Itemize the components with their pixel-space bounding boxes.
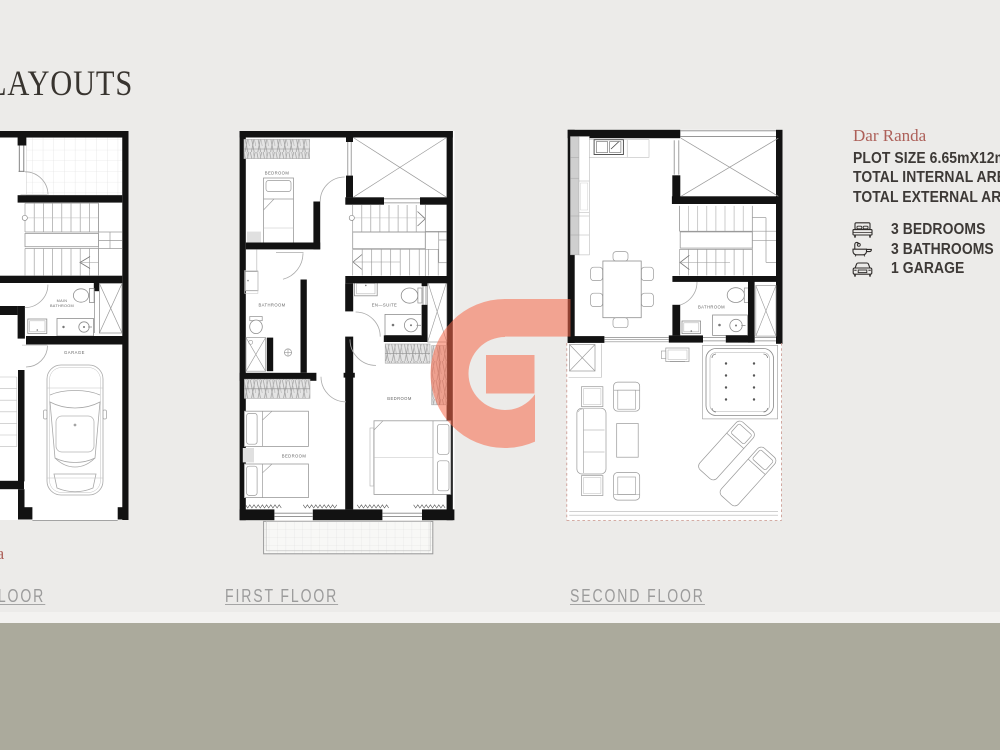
svg-text:BATHROOM: BATHROOM xyxy=(698,305,725,310)
svg-text:BEDROOM: BEDROOM xyxy=(282,454,307,459)
svg-text:BEDROOM: BEDROOM xyxy=(387,396,412,401)
svg-text:EN—SUITE: EN—SUITE xyxy=(372,303,398,308)
svg-text:GARAGE: GARAGE xyxy=(64,350,85,355)
svg-text:MAIN: MAIN xyxy=(57,299,68,303)
svg-text:BEDROOM: BEDROOM xyxy=(265,171,290,176)
svg-text:BATHROOM: BATHROOM xyxy=(258,303,285,308)
svg-text:BATHROOM: BATHROOM xyxy=(50,304,74,308)
